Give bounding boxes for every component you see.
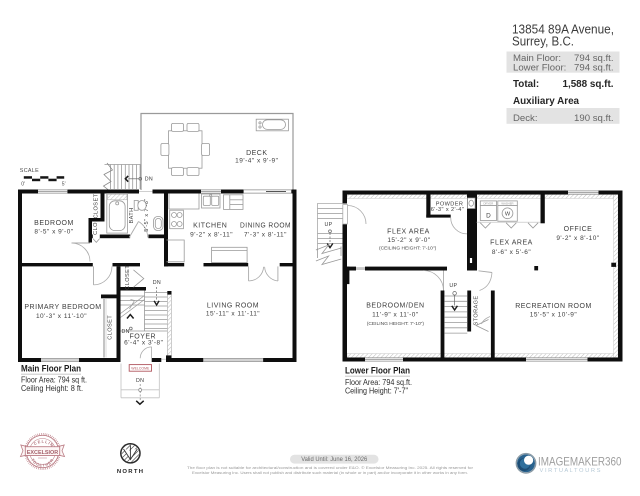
svg-text:D: D [486, 212, 491, 219]
svg-text:(CEILING HEIGHT: 7'-10"): (CEILING HEIGHT: 7'-10") [367, 321, 425, 327]
svg-text:Surrey, B.C.: Surrey, B.C. [512, 34, 574, 49]
svg-text:Total:: Total: [513, 79, 539, 90]
svg-text:Floor Area: 794 sq.ft.: Floor Area: 794 sq.ft. [345, 378, 412, 387]
svg-text:11'-9" x 11'-0": 11'-9" x 11'-0" [372, 312, 419, 319]
svg-text:DN: DN [153, 280, 161, 286]
svg-text:15'-2" x 9'-0": 15'-2" x 9'-0" [387, 237, 431, 244]
svg-text:EXCELSIOR: EXCELSIOR [27, 450, 59, 456]
svg-text:NORTH: NORTH [117, 469, 144, 475]
svg-text:6'-4" x 3'-8": 6'-4" x 3'-8" [124, 339, 163, 346]
svg-text:Ceiling Height: 7'-7": Ceiling Height: 7'-7" [345, 387, 408, 396]
svg-text:794 sq.ft.: 794 sq.ft. [574, 63, 613, 74]
svg-text:BEDROOM: BEDROOM [34, 220, 74, 227]
svg-text:15'-11" x 11'-11": 15'-11" x 11'-11" [206, 311, 260, 318]
svg-text:BEDROOM/DEN: BEDROOM/DEN [366, 303, 424, 310]
svg-text:WELCOME: WELCOME [131, 367, 150, 371]
svg-text:Ceiling Height: 8 ft.: Ceiling Height: 8 ft. [21, 384, 83, 393]
svg-text:9'-2" x 8'-11": 9'-2" x 8'-11" [190, 231, 233, 238]
svg-text:SCALE: SCALE [20, 168, 39, 174]
svg-text:OFFICE: OFFICE [564, 226, 593, 233]
svg-text:6'-3" x 2'-4": 6'-3" x 2'-4" [431, 207, 464, 213]
svg-text:KITCHEN: KITCHEN [193, 223, 227, 230]
svg-text:15'-5" x 10'-9": 15'-5" x 10'-9" [530, 312, 578, 319]
svg-text:RECREATION ROOM: RECREATION ROOM [515, 303, 592, 310]
svg-text:UP: UP [325, 222, 333, 228]
svg-text:0': 0' [21, 182, 25, 188]
svg-text:DECK: DECK [246, 150, 267, 157]
svg-text:Deck:: Deck: [513, 113, 538, 124]
svg-text:DN: DN [145, 177, 153, 183]
svg-text:190 sq.ft.: 190 sq.ft. [574, 113, 613, 124]
svg-text:FLEX AREA: FLEX AREA [387, 229, 430, 236]
svg-text:19'-4" x 9'-9": 19'-4" x 9'-9" [235, 157, 279, 164]
svg-text:Main Floor Plan: Main Floor Plan [21, 363, 81, 374]
svg-text:8'-6" x 5'-6": 8'-6" x 5'-6" [492, 249, 531, 256]
svg-text:10'-3" x 11'-10": 10'-3" x 11'-10" [36, 313, 87, 320]
svg-text:CLOSET: CLOSET [125, 265, 131, 290]
svg-text:LIVING ROOM: LIVING ROOM [207, 302, 259, 309]
svg-text:9'-2" x 8'-10": 9'-2" x 8'-10" [556, 235, 600, 242]
svg-text:1,588 sq.ft.: 1,588 sq.ft. [562, 79, 613, 90]
svg-text:IMAGEMAKER360: IMAGEMAKER360 [538, 454, 622, 468]
svg-text:STORAGE: STORAGE [474, 295, 480, 325]
svg-text:Valid Until: June 16, 2026: Valid Until: June 16, 2026 [301, 457, 368, 463]
svg-text:CLOSET: CLOSET [93, 193, 99, 218]
svg-text:V I R T U A L T O U R S: V I R T U A L T O U R S [540, 468, 602, 474]
svg-text:FLEX AREA: FLEX AREA [490, 239, 533, 246]
svg-text:8'-5" x 9'-0": 8'-5" x 9'-0" [34, 228, 73, 235]
svg-text:Lower Floor:: Lower Floor: [513, 63, 566, 74]
svg-text:W: W [505, 211, 511, 217]
svg-text:Lower Floor Plan: Lower Floor Plan [345, 365, 410, 376]
svg-text:UP: UP [449, 283, 457, 289]
svg-text:Auxiliary Area: Auxiliary Area [513, 96, 580, 107]
svg-text:DN: DN [136, 378, 144, 384]
svg-text:CLO.: CLO. [93, 220, 99, 235]
svg-text:5': 5' [62, 182, 66, 188]
svg-text:(CEILING HEIGHT: 7'-10"): (CEILING HEIGHT: 7'-10") [379, 245, 437, 251]
svg-text:Excelsior Measuring Inc. Users: Excelsior Measuring Inc. Users shall not… [192, 470, 468, 475]
svg-text:DINING ROOM: DINING ROOM [240, 223, 291, 230]
svg-text:CLOSET: CLOSET [108, 315, 114, 340]
svg-text:Floor Area: 794 sq ft.: Floor Area: 794 sq ft. [21, 375, 87, 384]
svg-text:DRYER: DRYER [484, 201, 494, 205]
svg-text:PRIMARY BEDROOM: PRIMARY BEDROOM [24, 304, 101, 311]
svg-text:WASHER: WASHER [501, 201, 513, 205]
svg-text:7'-3" x 8'-11": 7'-3" x 8'-11" [244, 231, 287, 238]
